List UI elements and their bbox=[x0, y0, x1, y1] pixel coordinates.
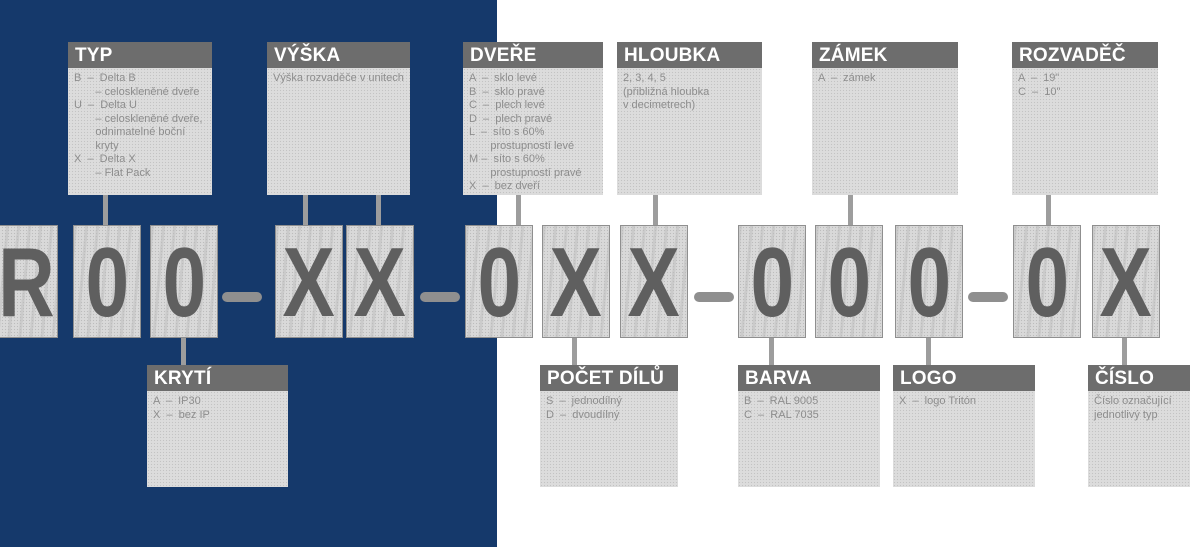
box-zamek: ZÁMEK A – zámek bbox=[812, 42, 958, 195]
box-dvere-line: B – sklo pravé bbox=[469, 86, 603, 100]
box-typ-line: – Flat Pack bbox=[74, 167, 212, 181]
box-dvere-body: A – sklo levé B – sklo pravé C – plech l… bbox=[463, 68, 603, 195]
box-kryti-body: A – IP30 X – bez IP bbox=[147, 391, 288, 487]
box-pocet-dilu-line: D – dvoudílný bbox=[546, 409, 678, 423]
box-dvere-line: A – sklo levé bbox=[469, 72, 603, 86]
box-typ-title: TYP bbox=[68, 42, 212, 68]
box-rozvadec: ROZVADĚČ A – 19" C – 10" bbox=[1012, 42, 1158, 195]
code-cell-11: 0 bbox=[895, 225, 963, 338]
box-cislo-line: jednotlivý typ bbox=[1094, 409, 1190, 423]
box-kryti-line: A – IP30 bbox=[153, 395, 288, 409]
box-typ-line: kryty bbox=[74, 140, 212, 154]
box-barva: BARVA B – RAL 9005 C – RAL 7035 bbox=[738, 365, 880, 487]
box-dvere-line: X – bez dveří bbox=[469, 180, 603, 194]
box-vyska-line: Výška rozvaděče v unitech bbox=[273, 72, 410, 86]
box-dvere-line: M – síto s 60% bbox=[469, 153, 603, 167]
box-kryti-line: X – bez IP bbox=[153, 409, 288, 423]
box-rozvadec-body: A – 19" C – 10" bbox=[1012, 68, 1158, 195]
box-barva-line: C – RAL 7035 bbox=[744, 409, 880, 423]
box-rozvadec-line: C – 10" bbox=[1018, 86, 1158, 100]
box-cislo-line: Číslo označující bbox=[1094, 395, 1190, 409]
box-typ-line: – celoskleněné dveře, bbox=[74, 113, 212, 127]
box-hloubka-line: 2, 3, 4, 5 bbox=[623, 72, 762, 86]
code-cell-7: X bbox=[542, 225, 610, 338]
box-typ-line: odnimatelné boční bbox=[74, 126, 212, 140]
code-separator-dash-4 bbox=[968, 292, 1008, 302]
code-cell-9: 0 bbox=[738, 225, 806, 338]
code-cell-13: X bbox=[1092, 225, 1160, 338]
connector-rozvadec-to-cell12 bbox=[1046, 195, 1051, 225]
box-zamek-line: A – zámek bbox=[818, 72, 958, 86]
box-typ-line: B – Delta B bbox=[74, 72, 212, 86]
box-kryti: KRYTÍ A – IP30 X – bez IP bbox=[147, 365, 288, 487]
box-dvere-line: C – plech levé bbox=[469, 99, 603, 113]
box-logo-body: X – logo Tritón bbox=[893, 391, 1035, 487]
code-cell-4: X bbox=[275, 225, 343, 338]
box-hloubka: HLOUBKA 2, 3, 4, 5 (přibližná hloubka v … bbox=[617, 42, 762, 195]
box-pocet-dilu: POČET DÍLŮ S – jednodílný D – dvoudílný bbox=[540, 365, 678, 487]
box-barva-title: BARVA bbox=[738, 365, 880, 391]
code-separator-dash-2 bbox=[420, 292, 460, 302]
box-logo-title: LOGO bbox=[893, 365, 1035, 391]
code-cell-10: 0 bbox=[815, 225, 883, 338]
code-cell-3: 0 bbox=[150, 225, 218, 338]
box-typ-line: X – Delta X bbox=[74, 153, 212, 167]
box-hloubka-line: v decimetrech) bbox=[623, 99, 762, 113]
box-dvere-line: prostupností pravé bbox=[469, 167, 603, 181]
box-rozvadec-title: ROZVADĚČ bbox=[1012, 42, 1158, 68]
nomenclature-diagram: TYP B – Delta B – celoskleněné dveře U –… bbox=[0, 0, 1195, 547]
code-separator-dash-3 bbox=[694, 292, 734, 302]
code-cell-1: R bbox=[0, 225, 58, 338]
box-dvere-line: D – plech pravé bbox=[469, 113, 603, 127]
code-separator-dash-1 bbox=[222, 292, 262, 302]
connector-typ-to-cell2 bbox=[103, 195, 108, 225]
box-barva-line: B – RAL 9005 bbox=[744, 395, 880, 409]
box-logo: LOGO X – logo Tritón bbox=[893, 365, 1035, 487]
box-hloubka-line: (přibližná hloubka bbox=[623, 86, 762, 100]
connector-hloubka-to-cell8 bbox=[653, 195, 658, 225]
box-typ-line: U – Delta U bbox=[74, 99, 212, 113]
code-cell-5: X bbox=[346, 225, 414, 338]
box-dvere-line: prostupností levé bbox=[469, 140, 603, 154]
code-cell-2: 0 bbox=[73, 225, 141, 338]
code-cell-6: 0 bbox=[465, 225, 533, 338]
box-pocet-dilu-title: POČET DÍLŮ bbox=[540, 365, 678, 391]
box-vyska-body: Výška rozvaděče v unitech bbox=[267, 68, 410, 195]
box-pocet-dilu-line: S – jednodílný bbox=[546, 395, 678, 409]
box-cislo: ČÍSLO Číslo označující jednotlivý typ bbox=[1088, 365, 1190, 487]
connector-vyska-to-cell5 bbox=[376, 195, 381, 225]
box-typ-body: B – Delta B – celoskleněné dveře U – Del… bbox=[68, 68, 212, 195]
connector-zamek-to-cell10 bbox=[848, 195, 853, 225]
box-vyska-title: VÝŠKA bbox=[267, 42, 410, 68]
box-dvere: DVEŘE A – sklo levé B – sklo pravé C – p… bbox=[463, 42, 603, 195]
code-cell-8: X bbox=[620, 225, 688, 338]
box-logo-line: X – logo Tritón bbox=[899, 395, 1035, 409]
box-hloubka-title: HLOUBKA bbox=[617, 42, 762, 68]
connector-cell3-to-kryti bbox=[181, 338, 186, 365]
box-barva-body: B – RAL 9005 C – RAL 7035 bbox=[738, 391, 880, 487]
connector-cell13-to-cislo bbox=[1122, 338, 1127, 365]
code-cell-12: 0 bbox=[1013, 225, 1081, 338]
box-dvere-title: DVEŘE bbox=[463, 42, 603, 68]
box-typ: TYP B – Delta B – celoskleněné dveře U –… bbox=[68, 42, 212, 195]
box-vyska: VÝŠKA Výška rozvaděče v unitech bbox=[267, 42, 410, 195]
box-zamek-body: A – zámek bbox=[812, 68, 958, 195]
box-hloubka-body: 2, 3, 4, 5 (přibližná hloubka v decimetr… bbox=[617, 68, 762, 195]
connector-cell9-to-barva bbox=[769, 338, 774, 365]
box-typ-line: – celoskleněné dveře bbox=[74, 86, 212, 100]
box-cislo-title: ČÍSLO bbox=[1088, 365, 1190, 391]
box-cislo-body: Číslo označující jednotlivý typ bbox=[1088, 391, 1190, 487]
box-rozvadec-line: A – 19" bbox=[1018, 72, 1158, 86]
connector-dvere-to-cell6 bbox=[516, 195, 521, 225]
connector-cell11-to-logo bbox=[926, 338, 931, 365]
box-dvere-line: L – síto s 60% bbox=[469, 126, 603, 140]
connector-cell7-to-pocet bbox=[572, 338, 577, 365]
box-zamek-title: ZÁMEK bbox=[812, 42, 958, 68]
box-kryti-title: KRYTÍ bbox=[147, 365, 288, 391]
box-pocet-dilu-body: S – jednodílný D – dvoudílný bbox=[540, 391, 678, 487]
connector-vyska-to-cell4 bbox=[303, 195, 308, 225]
